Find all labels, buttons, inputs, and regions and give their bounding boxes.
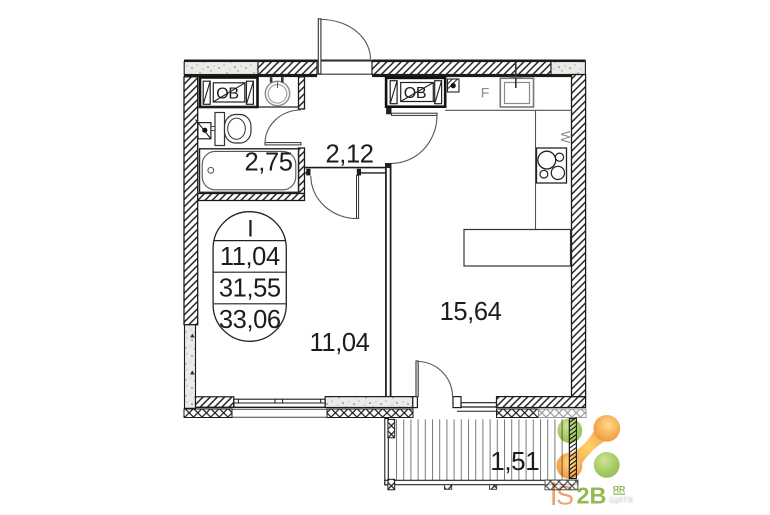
svg-text:15,64: 15,64 [440, 298, 502, 326]
svg-text:W: W [558, 131, 573, 144]
svg-text:11,04: 11,04 [220, 243, 280, 271]
svg-text:2,12: 2,12 [325, 140, 373, 168]
svg-text:2,75: 2,75 [244, 149, 292, 177]
svg-text:щита: щита [609, 495, 633, 506]
svg-text:31,55: 31,55 [219, 275, 281, 303]
svg-text:11,04: 11,04 [310, 329, 370, 357]
svg-text:F: F [481, 85, 490, 101]
svg-text:ЯR: ЯR [613, 485, 626, 495]
svg-text:33,06: 33,06 [219, 306, 281, 334]
svg-text:1,51: 1,51 [490, 446, 539, 476]
svg-text:ОВ: ОВ [216, 85, 239, 102]
svg-text:ОВ: ОВ [404, 85, 427, 102]
svg-text:I: I [247, 215, 254, 242]
svg-text:S: S [556, 481, 574, 511]
svg-text:2B: 2B [576, 483, 606, 509]
